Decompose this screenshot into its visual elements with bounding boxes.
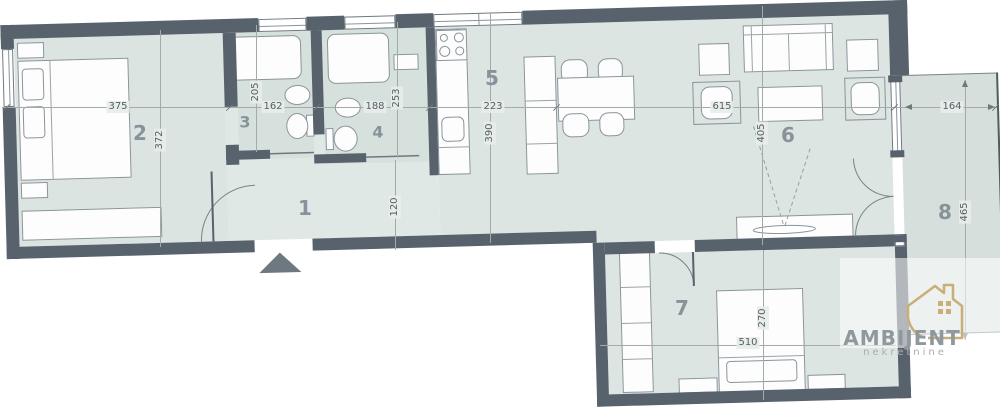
logo-tagline-text: nekretnine <box>860 347 950 358</box>
floorplan-canvas: 375 372 205 162 188 253 120 223 390 615 … <box>0 0 1000 410</box>
